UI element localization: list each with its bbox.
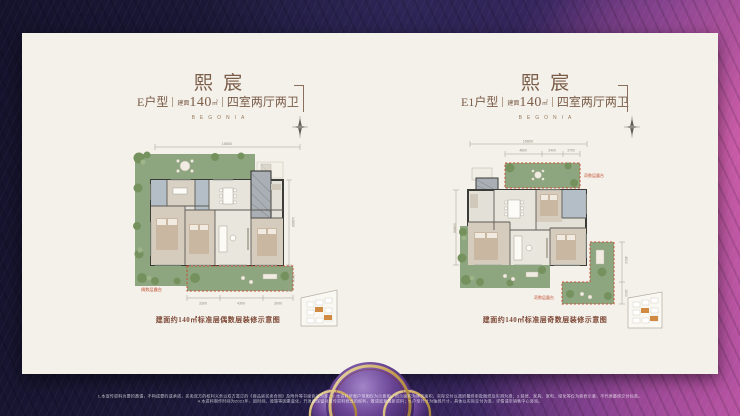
divider <box>502 97 503 107</box>
area-value: 140 <box>189 95 212 110</box>
dim-label: 4800 <box>519 149 527 153</box>
divider <box>552 97 553 107</box>
terrace-note-top: 奇数层露台 <box>584 172 604 178</box>
floor-plan-e1: 15600 4800 2400 2700 奇数层露台 <box>450 138 665 334</box>
plan-panel-e: 熙宸 E户型建面140㎡四室两厅两卫 BEGONIA 15600 <box>98 74 338 121</box>
building-unit <box>151 171 283 265</box>
legal-disclaimer: 1.本宣传资料为要约邀请，不构成要约或承诺，买卖双方的权利义务以双方签订的《商品… <box>8 394 732 404</box>
floor-plan-e: 15600 <box>125 138 340 334</box>
divider <box>222 97 223 107</box>
dim-label: 2600 <box>291 274 295 282</box>
dim-label: 14800 <box>453 223 457 233</box>
rooms-label: 四室两厅两卫 <box>227 95 299 109</box>
area-prefix: 建面 <box>177 101 189 107</box>
entry-core <box>472 168 498 192</box>
bracket-ornament <box>618 85 628 112</box>
plan-caption: 建面约140㎡标准层偶数层装修示意图 <box>98 315 338 325</box>
plan-subtitle: E1户型建面140㎡四室两厅两卫 <box>425 95 665 112</box>
dimension-bottom <box>187 295 293 301</box>
dim-label: 1500 <box>624 289 628 297</box>
brand-emblem <box>308 344 432 416</box>
dim-label: 2400 <box>548 149 556 153</box>
area-value: 140 <box>519 95 542 110</box>
dim-label: 14800 <box>291 217 295 227</box>
plan-title-block: 熙宸 E1户型建面140㎡四室两厅两卫 BEGONIA <box>425 74 665 121</box>
building-unit <box>468 190 586 265</box>
plan-title-block: 熙宸 E户型建面140㎡四室两厅两卫 BEGONIA <box>98 74 338 121</box>
compass-icon <box>292 116 308 138</box>
divider <box>172 97 173 107</box>
orb-center <box>326 362 414 416</box>
dim-top-label: 15600 <box>523 140 534 144</box>
area-unit: ㎡ <box>212 101 218 107</box>
plan-caption: 建面约140㎡标准层奇数层装修示意图 <box>425 315 665 325</box>
dim-label: 2700 <box>567 149 575 153</box>
type-label: E1户型 <box>461 95 498 109</box>
disclaimer-line-2: 4.本资料制作时间为2021年，因时间、政策等因素变化，开发商保留对宣传资料修改… <box>8 399 732 404</box>
compass-icon <box>624 116 640 138</box>
dim-label: 3300 <box>199 302 207 306</box>
dim-label: 3000 <box>274 302 282 306</box>
plan-title: 熙宸 <box>425 74 665 94</box>
area-unit: ㎡ <box>542 101 548 107</box>
dim-label: 4300 <box>237 302 245 306</box>
terrace-note-bottom: 奇数层露台 <box>534 294 554 300</box>
bracket-ornament <box>294 85 304 112</box>
plan-panel-e1: 熙宸 E1户型建面140㎡四室两厅两卫 BEGONIA 15600 4800 2… <box>425 74 665 121</box>
terrace-note: 偶数层露台 <box>141 286 162 293</box>
terrace-dashed <box>187 266 293 291</box>
type-label: E户型 <box>137 95 168 109</box>
terrace-dashed-top <box>505 163 580 189</box>
dim-label: 4500 <box>624 256 628 264</box>
dim-top-label: 15600 <box>222 142 233 146</box>
area-prefix: 建面 <box>507 101 519 107</box>
